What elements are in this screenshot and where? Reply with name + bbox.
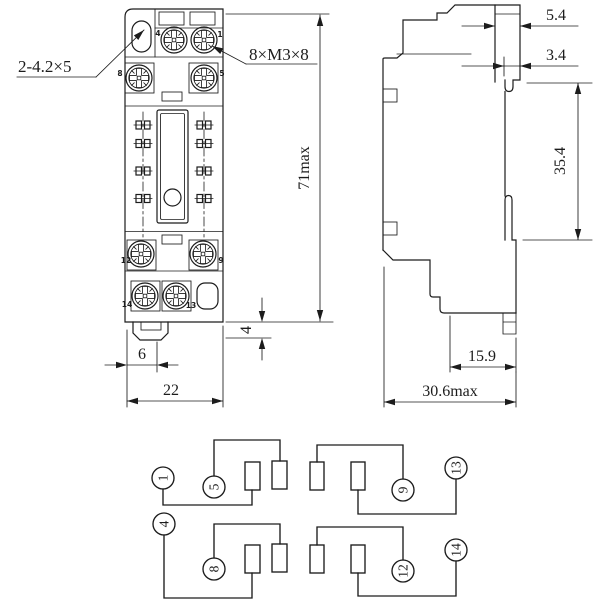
dim-arrow — [505, 399, 516, 405]
side-view-dimensions: 5.4 3.4 35.4 15.9 30.6max — [384, 7, 592, 407]
dim-label-overall-depth: 30.6max — [422, 383, 478, 400]
contact-clips — [134, 121, 213, 203]
dim-arrow — [116, 362, 127, 368]
terminal-circle-label: 1 — [156, 475, 171, 482]
terminal-circle-label: 8 — [207, 565, 222, 572]
terminal-circle-label: 13 — [449, 461, 464, 475]
wiring-schematic: 1 5 9 13 4 8 12 14 — [152, 440, 467, 598]
side-outline-lower — [383, 250, 516, 313]
terminal-circle-label: 14 — [449, 543, 464, 557]
dim-arrow — [127, 398, 138, 404]
cap-slot — [159, 12, 184, 25]
relay-slot-inner — [161, 114, 185, 220]
relay-socket-technical-drawing: 4 1 8 5 12 9 14 13 2-4.2×5 8×M3×8 71max … — [0, 0, 600, 605]
body-slot — [162, 235, 182, 244]
terminal-number: 9 — [218, 256, 223, 265]
dim-label-rail-section-height: 35.4 — [552, 147, 569, 175]
wire — [358, 479, 456, 514]
dim-arrow — [493, 63, 504, 69]
terminal-circle-label: 5 — [207, 483, 222, 490]
dim-arrow — [450, 364, 461, 370]
screw-terminal — [128, 241, 154, 267]
terminal-number: 4 — [155, 29, 160, 38]
terminal-number: 14 — [122, 300, 132, 309]
side-outline-upper — [383, 5, 520, 250]
wire — [317, 527, 403, 560]
dim-label-body-width: 22 — [163, 382, 179, 399]
dim-arrow — [575, 83, 581, 94]
wire — [214, 524, 280, 558]
terminal-number: 8 — [117, 69, 122, 78]
dim-label-terminal-depth: 15.9 — [468, 348, 496, 365]
body-slot — [162, 92, 182, 101]
dim-arrow — [520, 63, 531, 69]
slot-hole — [164, 189, 181, 206]
side-view — [383, 5, 520, 334]
dim-arrow — [157, 362, 168, 368]
dim-arrow — [259, 311, 265, 322]
dim-label-rail-hook-width: 3.4 — [546, 47, 566, 64]
dim-arrow — [505, 364, 516, 370]
contact-symbol — [310, 462, 324, 490]
clip-window — [383, 222, 397, 235]
dim-arrow — [259, 338, 265, 349]
dim-arrow — [212, 398, 223, 404]
terminal-circle-label: 9 — [396, 486, 411, 493]
mounting-hole-top — [132, 21, 151, 52]
dim-arrow — [484, 23, 495, 29]
screw-terminal — [190, 241, 216, 267]
wire — [163, 489, 252, 505]
callout-terminal-screws: 8×M3×8 — [249, 45, 309, 64]
drawing-canvas: 4 1 8 5 12 9 14 13 2-4.2×5 8×M3×8 71max … — [0, 0, 600, 605]
contact-symbol — [272, 544, 287, 572]
socket-body-outline — [125, 9, 223, 322]
screw-terminal — [161, 27, 187, 53]
latch-slot — [141, 322, 161, 330]
dim-label-overall-height: 71max — [296, 146, 313, 190]
screw-terminal — [132, 283, 158, 309]
dim-label-latch-height: 4 — [238, 326, 255, 334]
contact-symbol — [351, 462, 365, 490]
dim-arrow — [384, 399, 395, 405]
dim-arrow — [317, 15, 323, 26]
contact-symbol — [245, 545, 260, 573]
contact-symbol — [310, 545, 324, 573]
din-clip-pin — [505, 196, 516, 314]
dim-arrow — [520, 23, 531, 29]
terminal-number: 12 — [121, 256, 131, 265]
terminal-number: 1 — [217, 30, 222, 39]
dim-arrow — [575, 229, 581, 240]
front-view: 4 1 8 5 12 9 14 13 — [117, 9, 224, 340]
terminal-number: 5 — [219, 69, 224, 78]
terminal-tail — [503, 313, 516, 334]
clip-window — [383, 89, 397, 102]
screw-terminal — [191, 65, 217, 91]
contact-symbol — [245, 462, 260, 490]
mounting-hole-bottom — [197, 283, 218, 309]
contact-symbol — [272, 461, 287, 489]
terminal-number: 13 — [186, 301, 196, 310]
dim-label-top-tab-width: 5.4 — [546, 7, 566, 24]
callout-mounting-holes: 2-4.2×5 — [18, 57, 72, 76]
front-view-dimensions: 2-4.2×5 8×M3×8 71max 4 6 22 — [17, 14, 333, 407]
terminal-circle-label: 4 — [157, 520, 172, 527]
contact-symbol — [351, 545, 365, 573]
terminal-circle-label: 12 — [396, 564, 411, 578]
wire — [214, 440, 280, 476]
screw-terminal — [126, 65, 152, 91]
din-latch — [133, 322, 168, 340]
dim-arrow — [317, 310, 323, 321]
dim-label-latch-offset: 6 — [138, 346, 146, 363]
cap-slot — [190, 12, 215, 25]
leader-arrow — [210, 43, 223, 54]
screw-terminal — [191, 27, 217, 53]
